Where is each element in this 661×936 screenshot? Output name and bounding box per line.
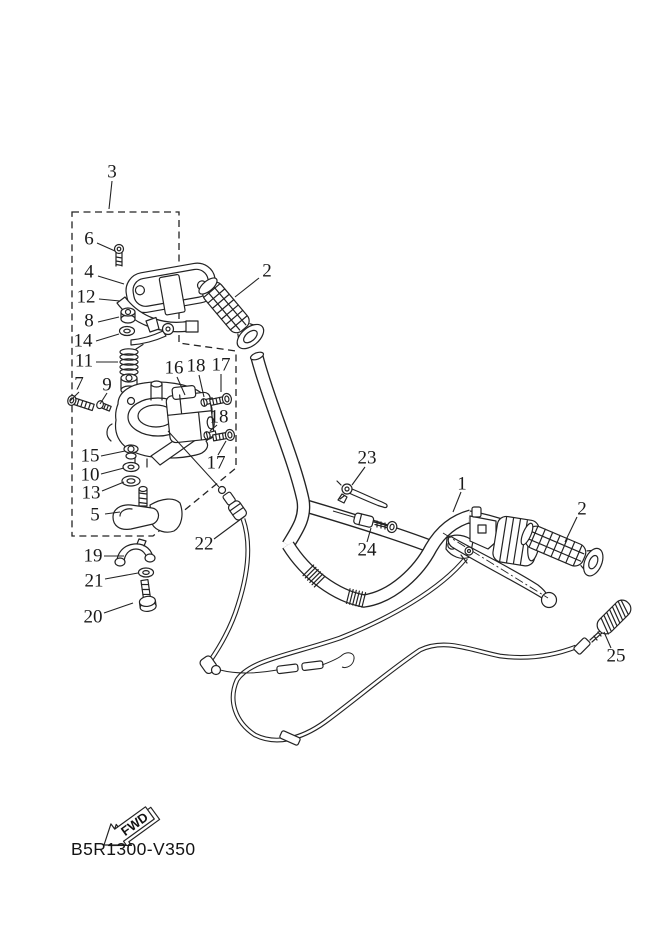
part-label-22[interactable]: 22 [195,535,214,554]
part-label-11[interactable]: 11 [75,352,93,371]
part-label-2a[interactable]: 2 [262,262,272,281]
part-code: B5R1300-V350 [71,839,195,860]
part-label-24[interactable]: 24 [358,541,377,560]
leader-line-15 [101,451,125,456]
part-label-4[interactable]: 4 [84,263,94,282]
part-label-2b[interactable]: 2 [577,500,587,519]
spring-11 [120,345,143,376]
part-label-7[interactable]: 7 [74,375,84,394]
leader-line-14 [96,334,119,341]
lever-ball-end [542,593,557,608]
handle-clamp-19 [115,539,155,566]
part-label-23[interactable]: 23 [358,449,377,468]
part-label-5[interactable]: 5 [90,506,100,525]
part-label-15[interactable]: 15 [81,447,100,466]
bolt-20 [136,579,156,612]
part-label-20[interactable]: 20 [84,608,103,627]
grip-upper [193,272,268,353]
part-label-9[interactable]: 9 [102,376,112,395]
part-label-12[interactable]: 12 [77,288,96,307]
part-label-19[interactable]: 19 [84,547,103,566]
leader-line-3 [109,181,112,209]
cable-holder-23 [337,481,387,508]
leader-line-2a [235,278,259,297]
part-label-1[interactable]: 1 [457,475,467,494]
nut-8 [121,308,135,323]
washer-21 [139,568,154,577]
leader-line-4 [98,276,124,284]
part-label-6[interactable]: 6 [84,230,94,249]
part-label-17b[interactable]: 17 [207,454,226,473]
part-label-18b[interactable]: 18 [210,408,229,427]
washer-10 [123,463,139,472]
screw-9 [96,400,112,413]
leader-line-12 [99,299,120,301]
part-label-14[interactable]: 14 [74,332,93,351]
leader-line-21 [105,573,138,579]
leader-line-23 [352,467,365,485]
part-label-21[interactable]: 21 [85,572,104,591]
part-label-13[interactable]: 13 [82,484,101,503]
leader-line-13 [102,482,124,491]
screw-6 [115,245,124,267]
leader-line-20 [104,603,133,613]
leader-line-6 [97,243,115,251]
part-label-25[interactable]: 25 [607,647,626,666]
leader-line-1 [453,492,461,512]
parts-diagram-page: FWD 364128141179161817181715101351921202… [0,0,661,936]
part-label-16[interactable]: 16 [165,359,184,378]
choke-lever-5 [113,487,182,533]
bushing-15 [124,445,138,459]
washer-13 [122,476,140,486]
leader-line-10 [101,468,124,474]
leader-line-8 [98,317,119,322]
leader-line-2b [565,517,577,542]
part-label-17a[interactable]: 17 [212,356,231,375]
part-label-3[interactable]: 3 [107,163,117,182]
part-label-18a[interactable]: 18 [187,357,206,376]
screw-7 [66,394,94,412]
leader-line-22 [214,516,245,539]
part-label-8[interactable]: 8 [84,312,94,331]
